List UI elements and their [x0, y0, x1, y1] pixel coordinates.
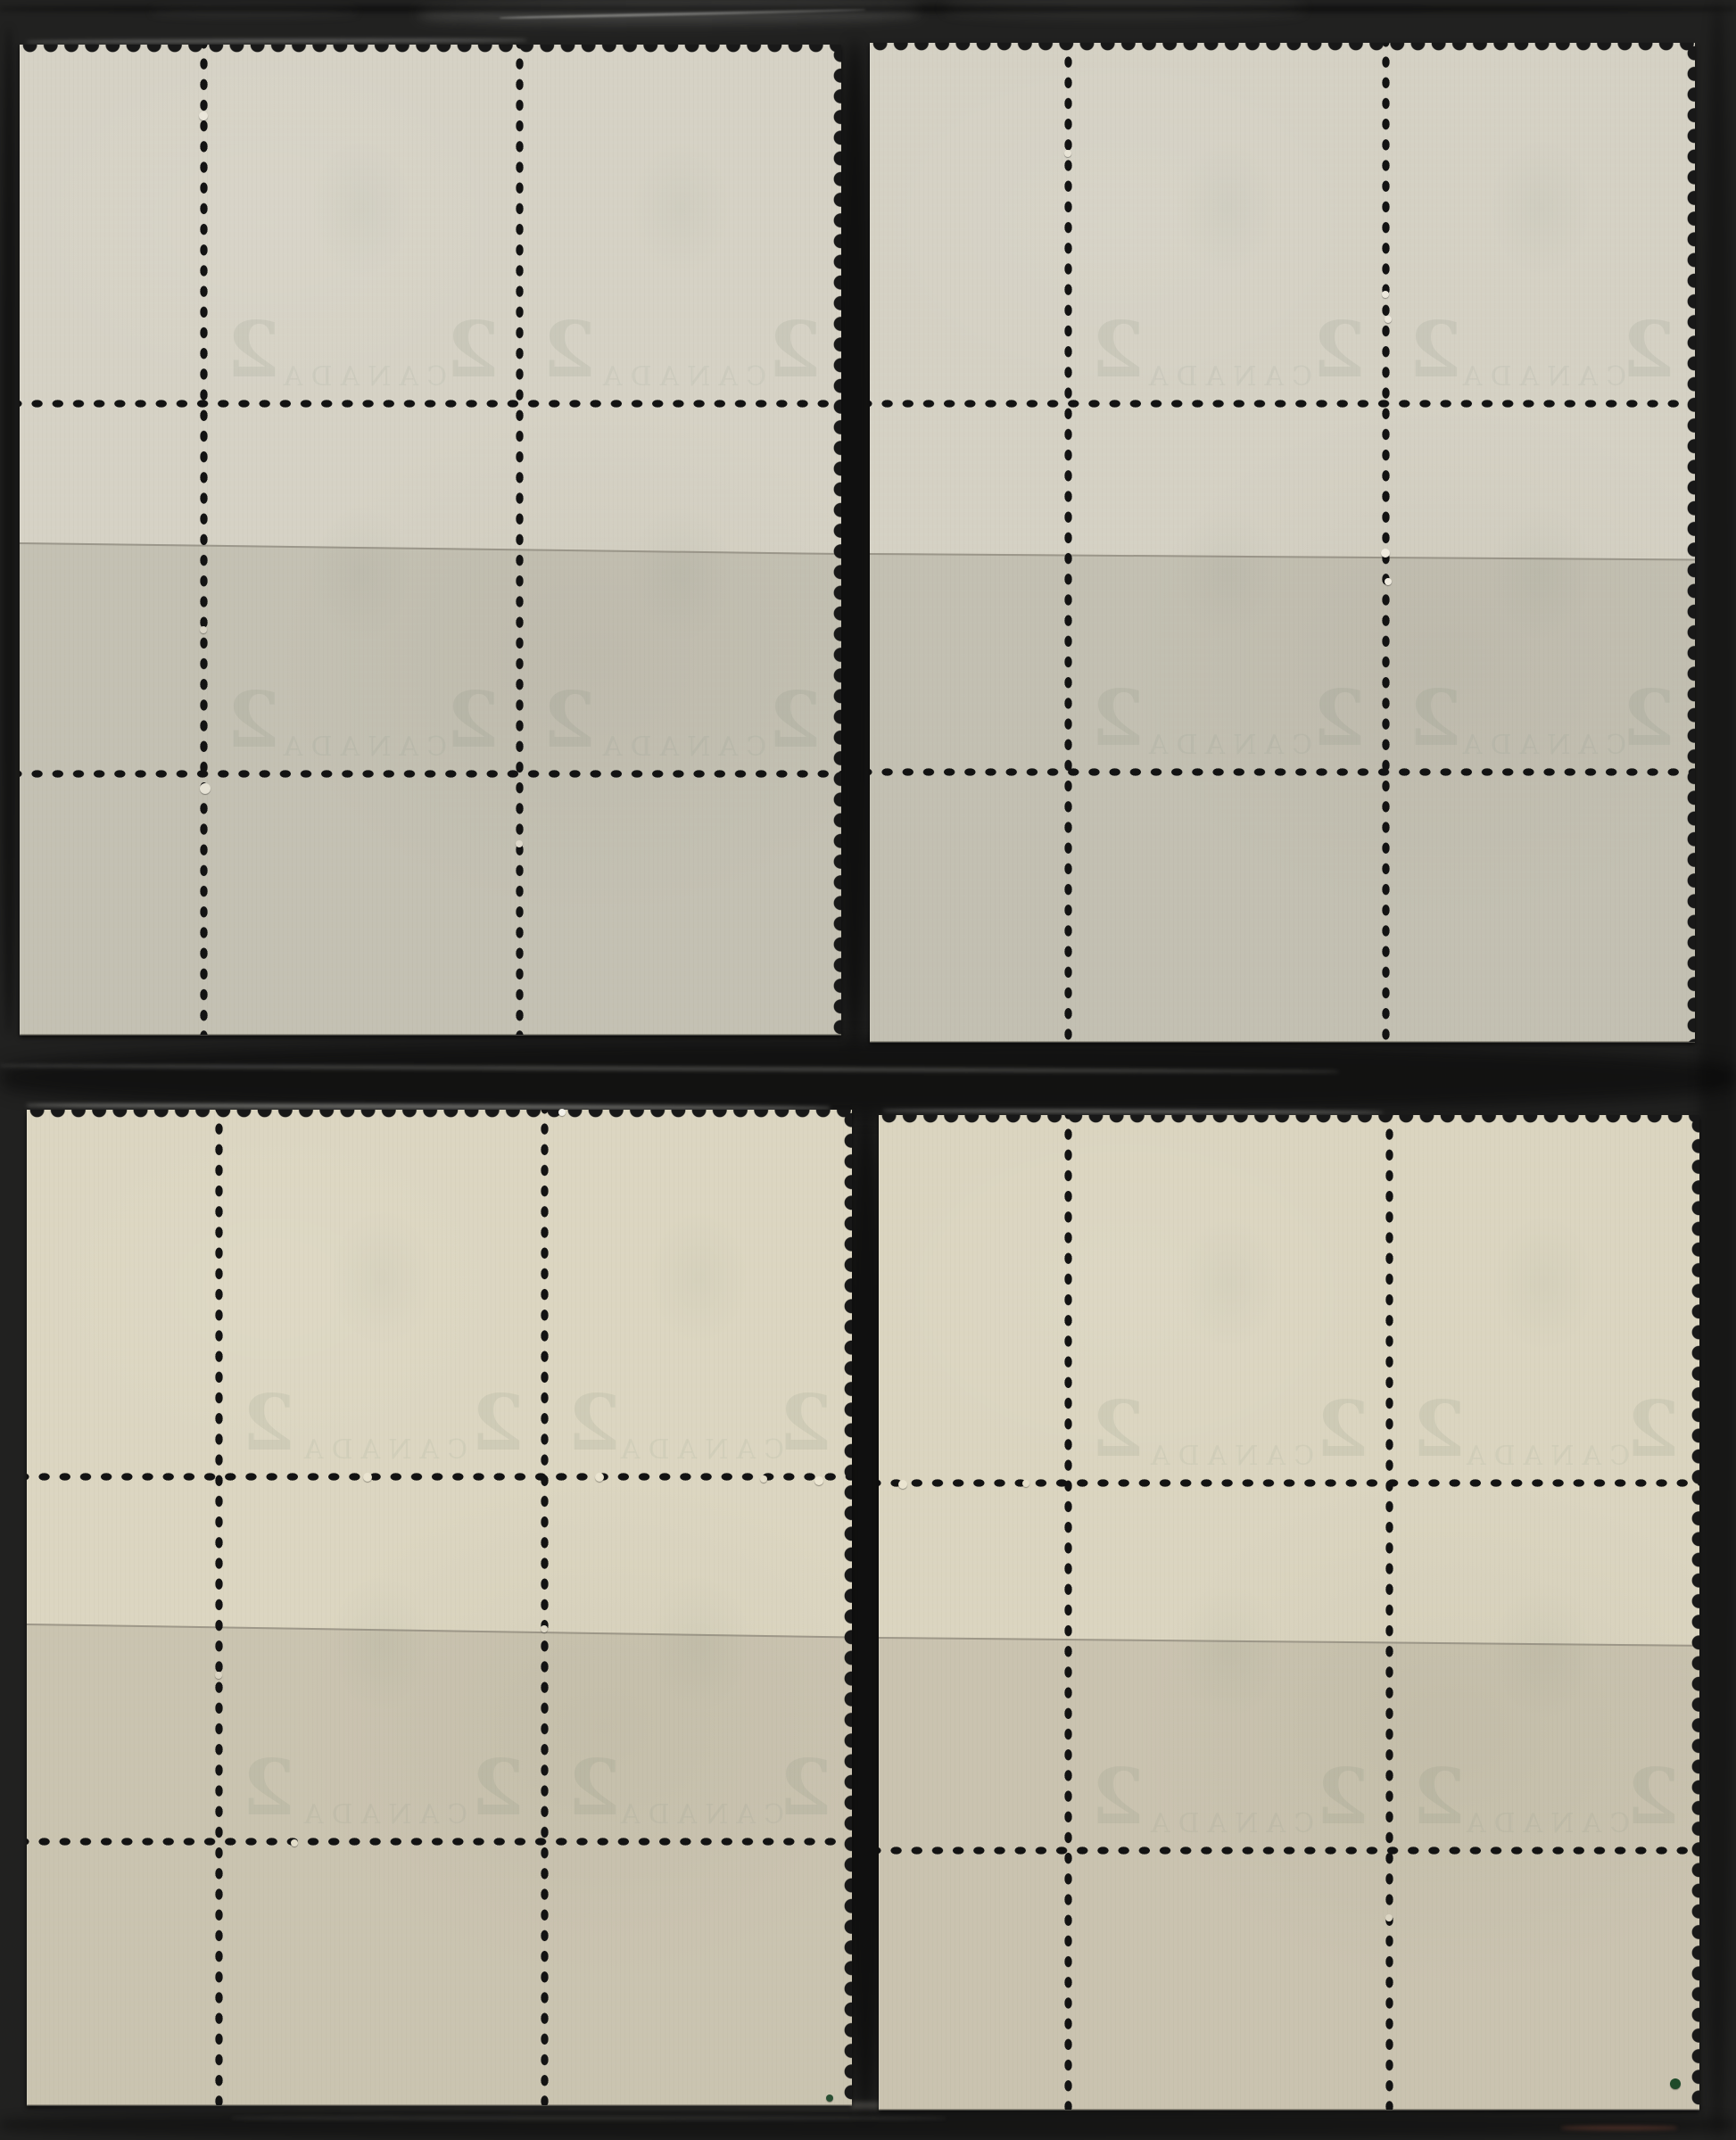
perforation-column	[1384, 1115, 1395, 2110]
show-through-portrait-smudge	[290, 112, 433, 304]
perforation-row	[20, 398, 841, 409]
dust-streak	[946, 0, 1302, 16]
show-through-portrait-smudge	[627, 1182, 770, 1374]
gum-speck	[1381, 549, 1390, 558]
gum-speck	[1064, 150, 1071, 157]
dust-streak	[152, 7, 357, 16]
dust-streak	[0, 1040, 1736, 1115]
stamp-block-bottom-right: 22CANADA22CANADA22CANADA22CANADA	[879, 1115, 1699, 2110]
gum-speck	[826, 2095, 833, 2102]
dust-streak	[0, 5, 1736, 12]
stamp-block-top-left: 22CANADA22CANADA22CANADA22CANADA	[20, 45, 841, 1035]
perforation-row	[879, 1477, 1699, 1489]
dust-streak	[419, 1, 919, 25]
show-through-portrait-smudge	[609, 112, 752, 304]
show-through-country: CANADA	[284, 1802, 480, 1829]
gum-speck	[215, 1672, 222, 1679]
glassine-mount-overlay	[27, 1624, 852, 2105]
gum-speck	[814, 1476, 823, 1485]
perforated-edge-right	[1685, 1115, 1699, 2110]
show-through-country: CANADA	[600, 1802, 797, 1829]
show-through-portrait-smudge	[1469, 112, 1612, 303]
perforation-row	[870, 766, 1695, 778]
gum-speck	[541, 1625, 548, 1632]
dust-streak	[837, 40, 872, 1048]
show-through-country: CANADA	[583, 734, 779, 761]
show-through-portrait-smudge	[1157, 1187, 1300, 1379]
gum-speck	[558, 1109, 566, 1116]
perforation-column	[213, 1110, 225, 2105]
show-through-country: CANADA	[263, 734, 459, 761]
gum-speck	[1385, 316, 1392, 323]
show-through-country: CANADA	[600, 1437, 797, 1464]
dust-streak	[0, 1064, 1338, 1074]
perforated-edge-top	[27, 1110, 852, 1124]
dust-streak	[500, 8, 865, 19]
gum-speck	[200, 783, 211, 794]
perforation-column	[1380, 43, 1392, 1042]
stock-card: 22CANADA22CANADA22CANADA22CANADA22CANADA…	[0, 0, 1736, 2140]
perforated-edge-right	[1681, 43, 1695, 1042]
show-through-portrait-smudge	[1473, 1187, 1616, 1379]
show-through-country: CANADA	[1446, 1811, 1642, 1838]
show-through-country: CANADA	[1128, 732, 1325, 759]
stamp-block-bottom-left: 22CANADA22CANADA22CANADA22CANADA	[27, 1110, 852, 2105]
gum-speck	[1385, 578, 1392, 585]
perforated-edge-right	[827, 45, 841, 1035]
glassine-mount-overlay	[879, 1637, 1699, 2110]
gum-speck	[760, 1475, 767, 1483]
perforation-row	[27, 1836, 852, 1847]
dust-streak	[27, 38, 526, 44]
dust-streak	[1561, 2126, 1677, 2130]
dust-streak	[232, 2116, 946, 2120]
glassine-mount-overlay	[20, 542, 841, 1035]
show-through-portrait-smudge	[1155, 112, 1298, 303]
show-through-country: CANADA	[284, 1437, 480, 1464]
perforated-edge-top	[20, 45, 841, 59]
perforated-edge-top	[879, 1115, 1699, 1129]
show-through-portrait-smudge	[310, 1182, 453, 1374]
show-through-country: CANADA	[1446, 1443, 1642, 1470]
perforated-edge-right	[838, 1110, 852, 2105]
show-through-country: CANADA	[583, 364, 779, 391]
gum-speck	[1670, 2078, 1681, 2089]
show-through-country: CANADA	[1130, 1443, 1327, 1470]
show-through-country: CANADA	[263, 364, 459, 391]
glassine-mount-overlay	[870, 553, 1695, 1042]
gum-speck	[898, 1480, 907, 1489]
perforation-column	[539, 1110, 550, 2105]
gum-speck	[595, 1473, 604, 1482]
gum-speck	[363, 1473, 372, 1482]
gum-speck	[291, 1839, 298, 1847]
dust-streak	[2, 27, 16, 1035]
gum-speck	[200, 626, 207, 633]
show-through-country: CANADA	[1443, 364, 1639, 391]
show-through-country: CANADA	[1443, 732, 1639, 759]
show-through-country: CANADA	[1128, 364, 1325, 391]
gum-speck	[1382, 291, 1389, 298]
perforation-row	[879, 1845, 1699, 1856]
dust-streak	[1699, 0, 1736, 2140]
gum-speck	[516, 840, 523, 847]
perforation-row	[870, 398, 1695, 409]
perforated-edge-top	[870, 43, 1695, 57]
perforation-column	[1062, 43, 1074, 1042]
gum-speck	[1022, 1480, 1029, 1487]
stamp-block-top-right: 22CANADA22CANADA22CANADA22CANADA	[870, 43, 1695, 1042]
perforation-column	[198, 45, 210, 1035]
perforation-column	[514, 45, 525, 1035]
dust-streak	[0, 2110, 1736, 2140]
perforation-column	[1062, 1115, 1074, 2110]
perforation-row	[20, 768, 841, 780]
dust-streak	[883, 1109, 1383, 1114]
perforation-row	[27, 1471, 852, 1483]
gum-speck	[199, 112, 208, 120]
show-through-country: CANADA	[1130, 1811, 1327, 1838]
gum-speck	[1385, 1914, 1393, 1921]
